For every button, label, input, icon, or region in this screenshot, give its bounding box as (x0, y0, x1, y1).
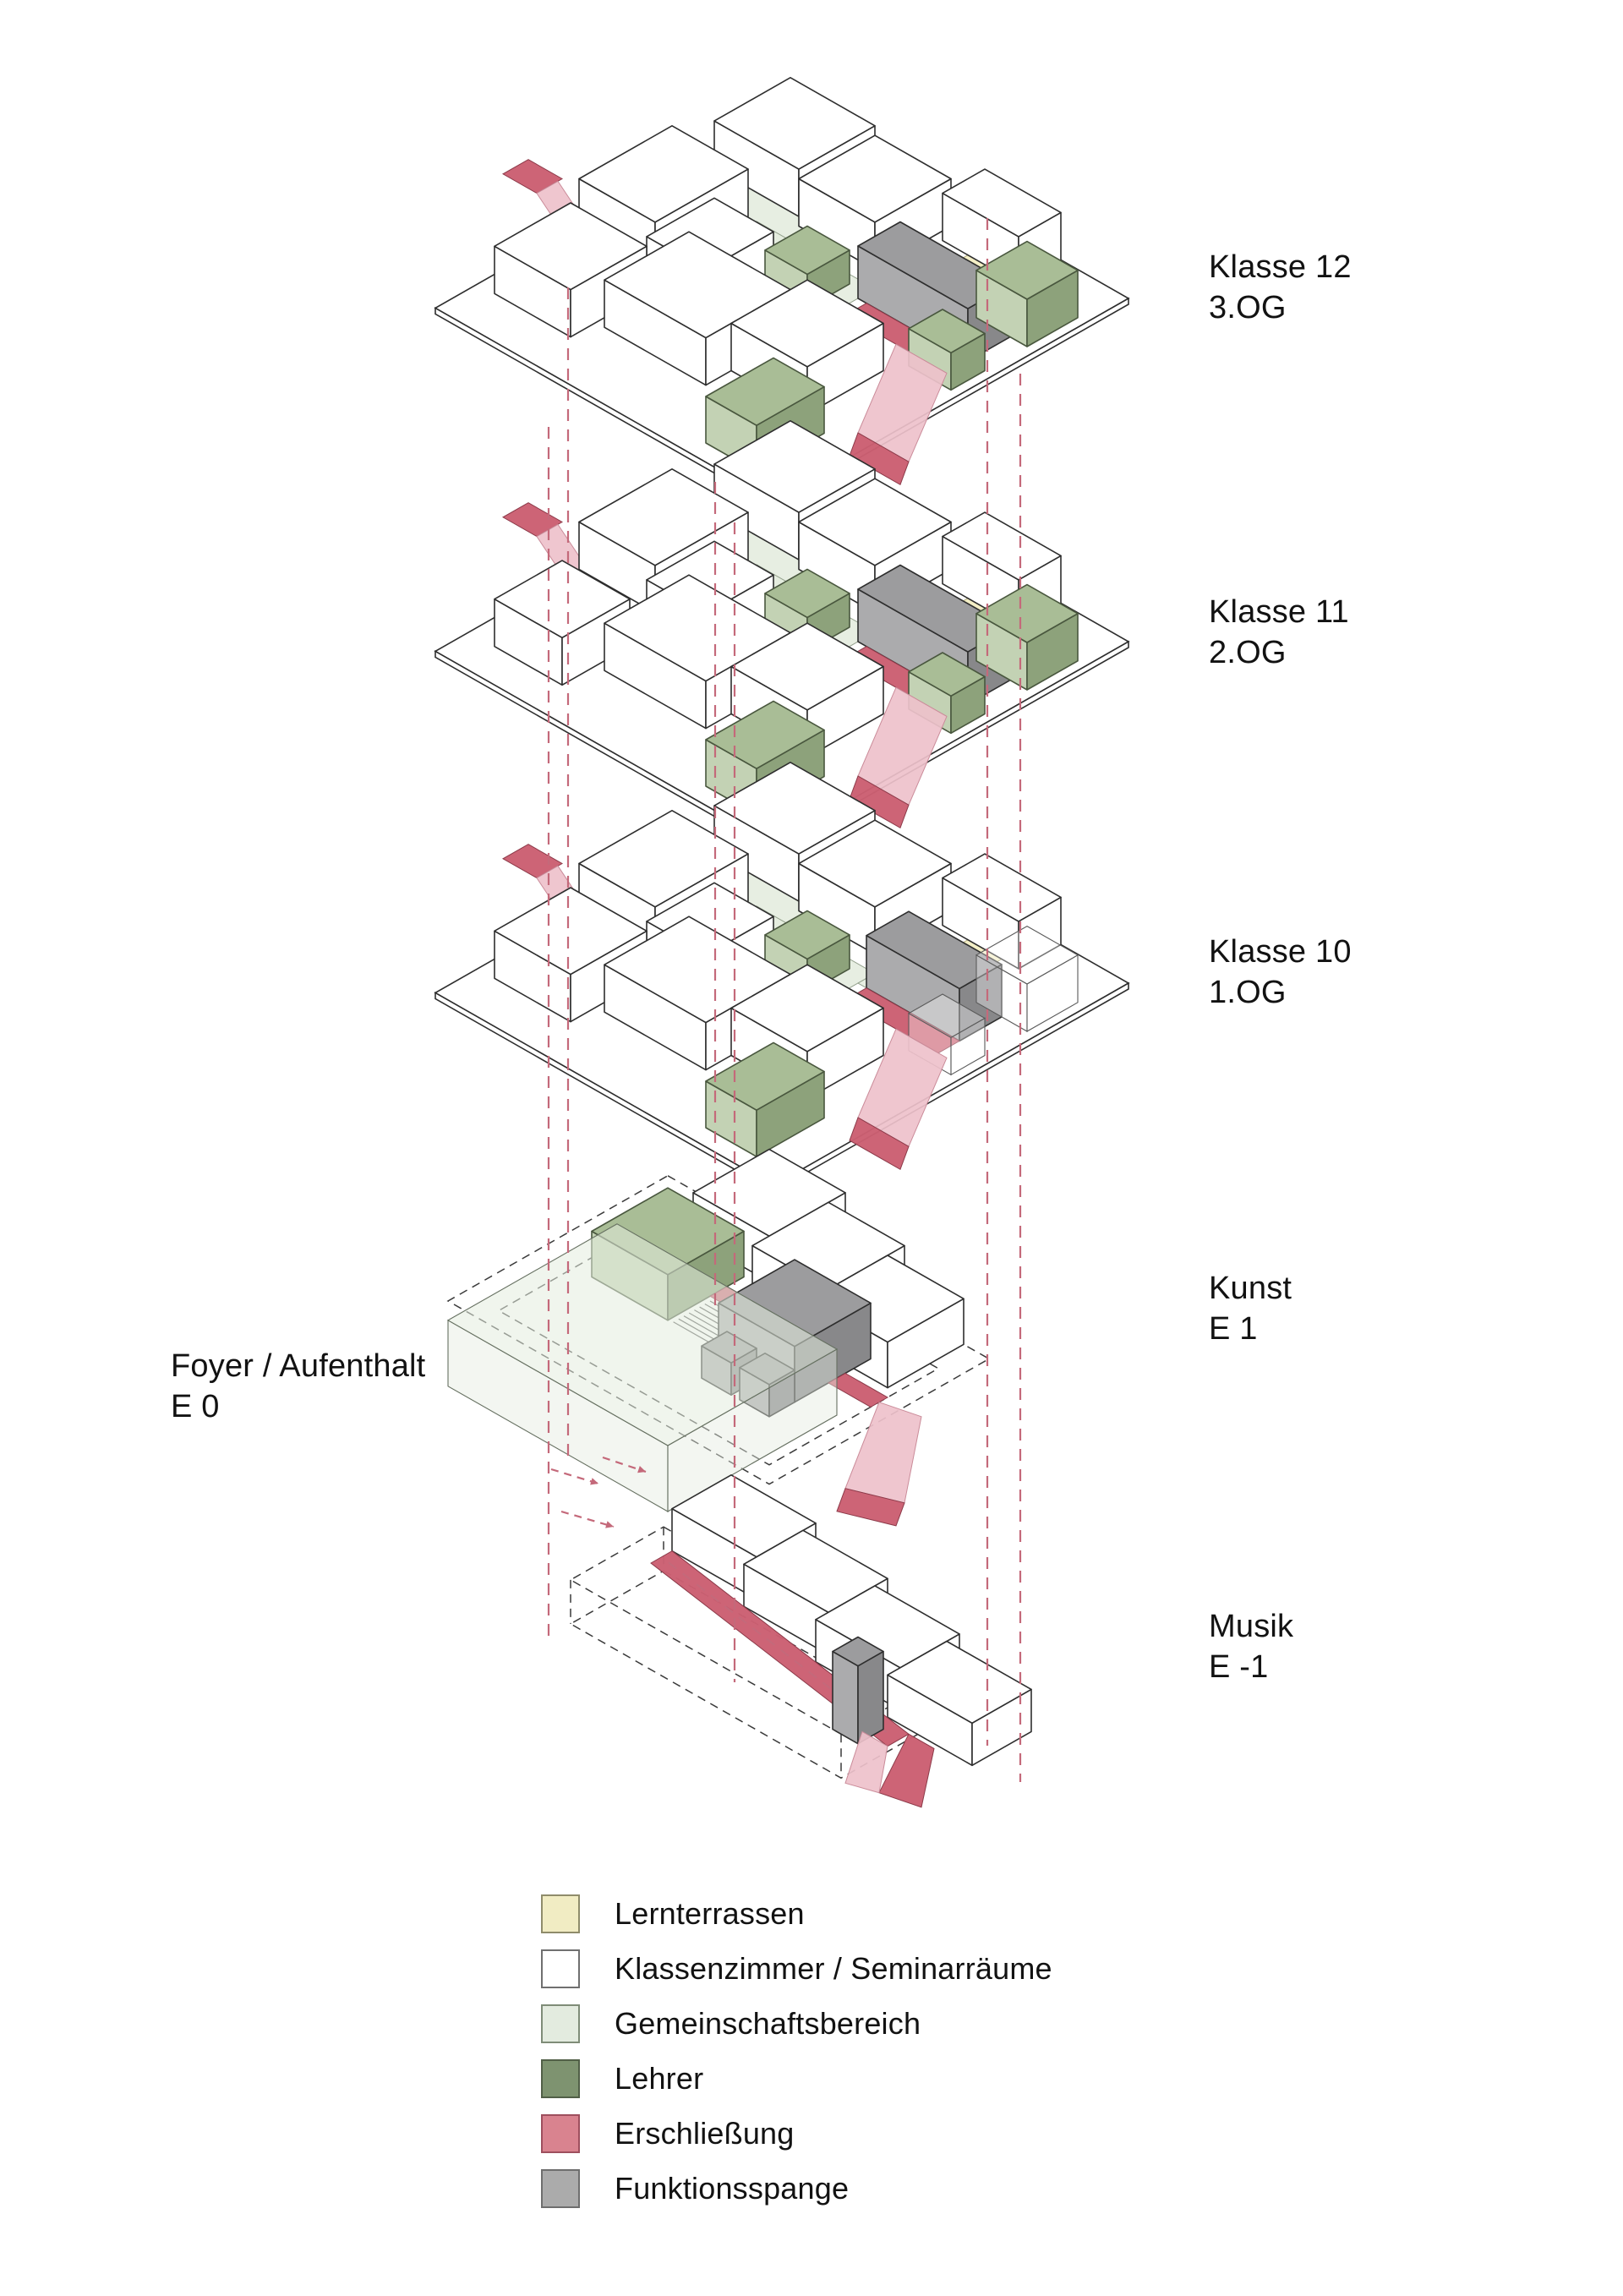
floor-label-kunst: Kunst E 1 (1209, 1268, 1292, 1349)
legend-label: Lernterrassen (615, 1896, 805, 1932)
floor-group-em1-musik (571, 1475, 1031, 1807)
floor-level: 2.OG (1209, 632, 1349, 673)
floor-name: Foyer / Aufenthalt (171, 1346, 425, 1386)
legend-item-gemeinschaftsbereich: Gemeinschaftsbereich (541, 2004, 1052, 2043)
floor-level: 1.OG (1209, 972, 1352, 1013)
legend-item-klassenzimmer: Klassenzimmer / Seminarräume (541, 1949, 1052, 1988)
legend-label: Funktionsspange (615, 2171, 849, 2206)
floor-name: Klasse 12 (1209, 247, 1352, 287)
legend-swatch-lehrer (541, 2059, 580, 2098)
floor-label-klasse-11: Klasse 11 2.OG (1209, 592, 1349, 673)
floor-label-klasse-12: Klasse 12 3.OG (1209, 247, 1352, 328)
floor-group-og1-klasse10 (435, 763, 1128, 1192)
legend-swatch-gemeinschaftsbereich (541, 2004, 580, 2043)
floor-name: Musik (1209, 1606, 1293, 1647)
floor-name: Kunst (1209, 1268, 1292, 1309)
legend-swatch-lernterrassen (541, 1894, 580, 1933)
legend-item-funktionsspange: Funktionsspange (541, 2168, 1052, 2208)
legend-label: Lehrer (615, 2061, 703, 2096)
legend-label: Klassenzimmer / Seminarräume (615, 1951, 1052, 1987)
floor-label-musik: Musik E -1 (1209, 1606, 1293, 1687)
floor-level: E -1 (1209, 1647, 1293, 1687)
legend-swatch-funktionsspange (541, 2169, 580, 2208)
floor-name: Klasse 10 (1209, 932, 1352, 972)
legend-swatch-klassenzimmer (541, 1949, 580, 1988)
legend-item-lehrer: Lehrer (541, 2058, 1052, 2098)
legend-label: Erschließung (615, 2116, 795, 2151)
exploded-axonometric-diagram: Klasse 12 3.OG Klasse 11 2.OG Klasse 10 … (0, 0, 1623, 2296)
legend-item-erschliessung: Erschließung (541, 2113, 1052, 2153)
floor-name: Klasse 11 (1209, 592, 1349, 632)
floor-level: E 1 (1209, 1309, 1292, 1349)
floor-label-klasse-10: Klasse 10 1.OG (1209, 932, 1352, 1013)
legend-label: Gemeinschaftsbereich (615, 2006, 921, 2042)
legend-item-lernterrassen: Lernterrassen (541, 1894, 1052, 1933)
floor-level: 3.OG (1209, 287, 1352, 328)
legend-swatch-erschliessung (541, 2114, 580, 2153)
floor-level: E 0 (171, 1386, 425, 1427)
floor-label-foyer-aufenthalt: Foyer / Aufenthalt E 0 (171, 1346, 425, 1427)
floor-group-e1-kunst-e0-foyer (448, 1150, 989, 1526)
legend: Lernterrassen Klassenzimmer / Seminarräu… (541, 1894, 1052, 2223)
